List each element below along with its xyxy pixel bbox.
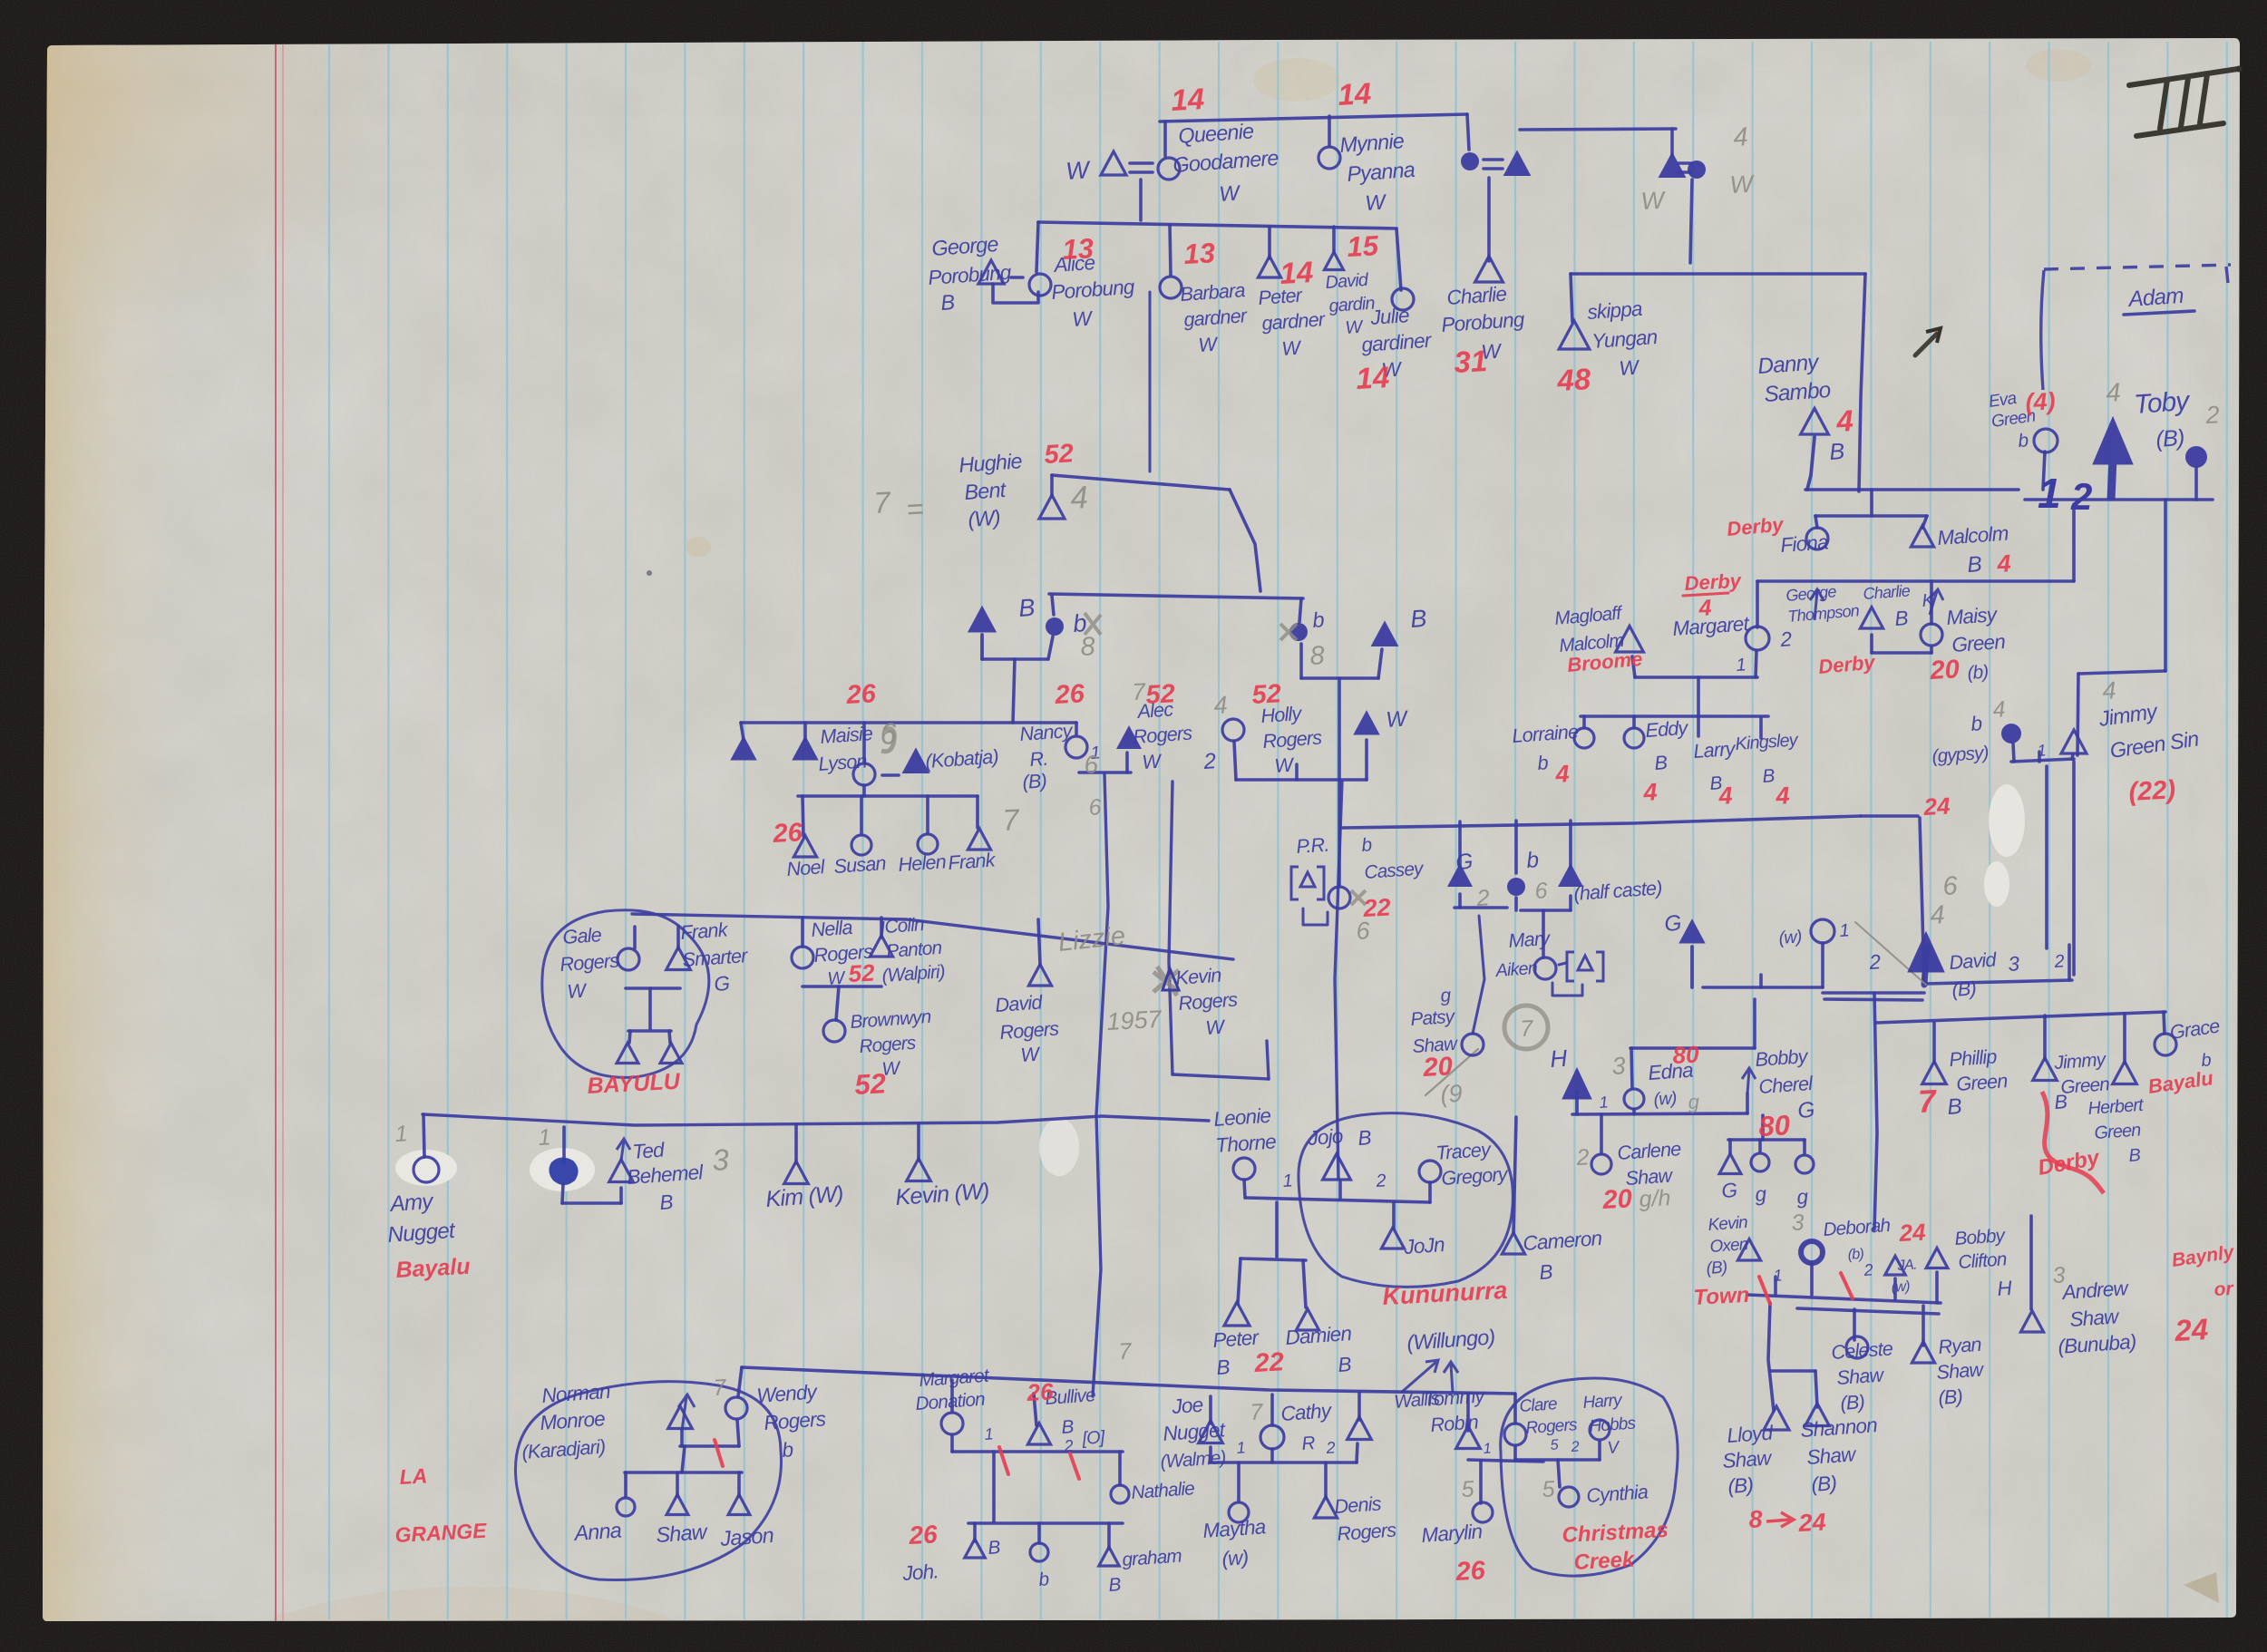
svg-text:Green: Green [1951, 630, 2006, 656]
svg-text:Ryan: Ryan [1938, 1333, 1983, 1358]
svg-text:Susan: Susan [833, 851, 888, 878]
svg-text:Green: Green [1956, 1069, 2009, 1095]
svg-text:(w): (w) [1778, 927, 1803, 948]
svg-text:4: 4 [1069, 480, 1088, 516]
svg-text:b: b [2018, 430, 2029, 452]
svg-text:Kim (W): Kim (W) [764, 1181, 843, 1212]
svg-text:6: 6 [1084, 750, 1100, 779]
svg-text:2: 2 [1575, 1144, 1590, 1171]
svg-text:20: 20 [1929, 655, 1961, 685]
svg-text:Jason: Jason [719, 1523, 774, 1550]
svg-text:6: 6 [879, 716, 898, 751]
svg-text:Mary: Mary [1508, 927, 1552, 952]
svg-text:W: W [1729, 170, 1756, 199]
svg-text:Nathalie: Nathalie [1131, 1478, 1195, 1503]
svg-text:7: 7 [872, 485, 892, 520]
svg-text:Rogers: Rogers [559, 948, 620, 976]
svg-text:Green: Green [2060, 1074, 2110, 1098]
svg-text:B: B [1539, 1260, 1554, 1284]
svg-text:B: B [1894, 607, 1910, 630]
svg-text:Patsy: Patsy [1410, 1006, 1457, 1030]
svg-text:26: 26 [908, 1520, 939, 1550]
svg-text:Colin: Colin [884, 914, 925, 938]
svg-text:22: 22 [1253, 1347, 1285, 1378]
svg-text:Yungan: Yungan [1591, 326, 1659, 353]
svg-text:Rogers: Rogers [859, 1033, 917, 1057]
svg-text:7: 7 [713, 1375, 727, 1401]
svg-text:Town: Town [1693, 1283, 1750, 1310]
svg-text:B: B [1338, 1353, 1353, 1376]
svg-text:b: b [1970, 712, 1983, 735]
svg-text:3: 3 [2052, 1262, 2066, 1288]
svg-text:Eva: Eva [1988, 389, 2018, 412]
svg-text:8: 8 [1748, 1505, 1764, 1533]
svg-text:4: 4 [1213, 691, 1229, 719]
svg-text:gardin: gardin [1328, 293, 1376, 316]
svg-text:2: 2 [2070, 475, 2092, 518]
svg-text:4: 4 [1642, 778, 1659, 806]
svg-text:6: 6 [1356, 917, 1372, 945]
svg-text:b: b [1526, 848, 1540, 873]
svg-text:8: 8 [1309, 641, 1326, 671]
svg-text:David: David [1325, 270, 1370, 293]
svg-text:Bayalu: Bayalu [395, 1254, 471, 1283]
svg-text:Creek: Creek [1573, 1547, 1637, 1575]
svg-text:(22): (22) [2128, 775, 2176, 807]
svg-text:Lyson: Lyson [818, 749, 869, 775]
svg-text:Nugget: Nugget [387, 1219, 457, 1248]
svg-text:1: 1 [538, 1124, 551, 1151]
svg-text:Panton: Panton [886, 938, 943, 962]
svg-text:31: 31 [1453, 344, 1488, 379]
svg-text:P.R.: P.R. [1296, 833, 1330, 858]
svg-text:4: 4 [1992, 696, 2006, 723]
svg-text:6: 6 [1534, 878, 1548, 904]
svg-text:Tracey: Tracey [1435, 1138, 1493, 1164]
svg-text:Celeste: Celeste [1831, 1336, 1894, 1364]
svg-text:Cathy: Cathy [1280, 1399, 1334, 1425]
svg-text:(B): (B) [1938, 1385, 1963, 1409]
svg-text:(W): (W) [968, 506, 1001, 531]
svg-text:Rogers: Rogers [1262, 725, 1323, 753]
svg-text:or: or [2213, 1278, 2235, 1300]
svg-text:2: 2 [2204, 401, 2221, 429]
svg-text:13: 13 [1183, 237, 1216, 270]
svg-text:B: B [1216, 1356, 1231, 1379]
svg-text:(B): (B) [1022, 769, 1047, 793]
svg-text:7: 7 [1001, 802, 1021, 837]
svg-text:Rogers: Rogers [1525, 1415, 1579, 1438]
svg-text:David: David [1949, 947, 1999, 974]
svg-text:Derby: Derby [1684, 569, 1743, 595]
svg-text:G: G [1455, 850, 1474, 875]
svg-text:Hobbs: Hobbs [1589, 1414, 1637, 1436]
svg-text:1: 1 [1839, 920, 1850, 941]
svg-text:Sambo: Sambo [1764, 378, 1832, 407]
svg-text:Toby: Toby [2133, 386, 2192, 420]
svg-text:Maisie: Maisie [820, 722, 874, 748]
svg-text:3: 3 [1611, 1052, 1627, 1080]
svg-text:Hughie: Hughie [958, 449, 1024, 477]
svg-text:Harry: Harry [1582, 1391, 1624, 1413]
svg-text:26: 26 [1054, 679, 1086, 710]
svg-text:Bobby: Bobby [1755, 1045, 1810, 1071]
svg-text:G: G [1721, 1179, 1738, 1202]
svg-text:=: = [905, 491, 924, 526]
svg-text:6: 6 [1088, 794, 1102, 821]
svg-text:7: 7 [1118, 1338, 1133, 1365]
svg-text:Robin: Robin [1430, 1410, 1480, 1436]
svg-text:Rogers: Rogers [1337, 1518, 1397, 1545]
svg-text:Bent: Bent [964, 478, 1008, 504]
svg-text:(4): (4) [2025, 387, 2057, 416]
svg-text:Rogers: Rogers [1133, 721, 1193, 748]
svg-text:Andrew: Andrew [2060, 1277, 2131, 1304]
svg-text:6: 6 [1942, 871, 1960, 901]
svg-text:JoJn: JoJn [1403, 1233, 1445, 1258]
svg-text:4: 4 [1834, 403, 1853, 438]
svg-text:26: 26 [1455, 1556, 1487, 1587]
svg-text:Rogers: Rogers [1178, 987, 1239, 1015]
svg-text:Rogers: Rogers [999, 1016, 1060, 1044]
svg-text:(w): (w) [1653, 1088, 1678, 1110]
svg-text:graham: graham [1122, 1545, 1182, 1570]
svg-text:2: 2 [1475, 885, 1490, 911]
svg-text:Damien: Damien [1285, 1322, 1353, 1349]
svg-text:Herbert: Herbert [2087, 1095, 2145, 1119]
svg-text:Eddy: Eddy [1645, 716, 1690, 742]
svg-text:BAYULU: BAYULU [587, 1069, 682, 1099]
svg-text:(B): (B) [1811, 1472, 1838, 1496]
svg-text:Lorraine: Lorraine [1512, 720, 1580, 747]
svg-text:4: 4 [1698, 595, 1712, 621]
svg-text:48: 48 [1555, 362, 1591, 397]
svg-text:Charlie: Charlie [1446, 282, 1508, 309]
svg-text:Kevin: Kevin [1708, 1213, 1748, 1235]
svg-text:Nancy: Nancy [1019, 719, 1075, 745]
svg-text:Fiona: Fiona [1780, 530, 1829, 557]
svg-text:JA.: JA. [1896, 1257, 1917, 1274]
svg-text:(9: (9 [1440, 1080, 1464, 1108]
svg-text:g/h: g/h [1639, 1185, 1671, 1212]
svg-text:5: 5 [1461, 1476, 1474, 1502]
svg-text:Rogers: Rogers [764, 1407, 827, 1434]
svg-text:Clifton: Clifton [1958, 1249, 2008, 1273]
svg-text:1: 1 [1282, 1171, 1293, 1191]
svg-text:26: 26 [772, 818, 804, 849]
svg-text:W: W [1640, 187, 1668, 215]
svg-text:(b): (b) [1847, 1246, 1864, 1263]
svg-text:B: B [1017, 594, 1036, 622]
svg-text:7: 7 [1917, 1084, 1938, 1120]
svg-text:5: 5 [1542, 1476, 1555, 1502]
svg-text:B: B [1357, 1126, 1373, 1150]
svg-text:Peter: Peter [1212, 1326, 1261, 1352]
svg-text:Thorne: Thorne [1215, 1130, 1277, 1157]
svg-text:skippa: skippa [1587, 297, 1643, 324]
svg-text:B: B [2054, 1090, 2068, 1113]
svg-text:7: 7 [1520, 1015, 1534, 1042]
svg-text:Monroe: Monroe [540, 1407, 606, 1434]
svg-text:B: B [1947, 1094, 1963, 1120]
svg-text:(B): (B) [1951, 977, 1977, 1001]
svg-text:52: 52 [854, 1067, 887, 1101]
svg-text:Clare: Clare [1519, 1394, 1558, 1416]
svg-text:52: 52 [1044, 439, 1075, 470]
svg-text:(B): (B) [1706, 1258, 1728, 1278]
svg-text:Amy: Amy [388, 1190, 436, 1217]
svg-text:(B): (B) [1727, 1473, 1755, 1498]
svg-text:Helen: Helen [898, 850, 948, 876]
svg-text:1957: 1957 [1106, 1006, 1163, 1035]
svg-text:4: 4 [1717, 782, 1734, 810]
svg-text:Shaw: Shaw [1836, 1363, 1886, 1389]
svg-text:Gregory: Gregory [1441, 1162, 1510, 1190]
svg-text:1: 1 [2038, 470, 2061, 517]
svg-text:Aiken: Aiken [1494, 958, 1539, 981]
svg-text:G: G [714, 972, 731, 996]
svg-text:Norman: Norman [541, 1380, 611, 1407]
svg-text:Charlie: Charlie [1863, 581, 1911, 603]
svg-text:Phillip: Phillip [1949, 1045, 1998, 1071]
svg-text:80: 80 [1672, 1040, 1700, 1069]
svg-text:Jimmy: Jimmy [2053, 1049, 2108, 1074]
svg-text:4: 4 [1930, 900, 1946, 930]
svg-text:1: 1 [2037, 741, 2047, 760]
svg-text:Green: Green [2094, 1120, 2142, 1143]
svg-text:1: 1 [984, 1424, 994, 1443]
svg-text:Bobby: Bobby [1954, 1225, 2008, 1249]
svg-text:Nugget: Nugget [1163, 1418, 1228, 1445]
svg-text:14: 14 [1170, 82, 1205, 117]
svg-text:14: 14 [1355, 360, 1390, 395]
svg-text:4: 4 [1996, 549, 2012, 578]
svg-text:Wendy: Wendy [756, 1380, 820, 1407]
svg-text:Maytha: Maytha [1202, 1515, 1267, 1542]
svg-text:Joe: Joe [1171, 1394, 1204, 1418]
svg-text:Tommy: Tommy [1424, 1384, 1487, 1411]
svg-text:Cynthia: Cynthia [1586, 1480, 1649, 1507]
svg-text:1: 1 [1236, 1438, 1246, 1457]
svg-text:52: 52 [1145, 679, 1176, 710]
svg-text:24: 24 [1898, 1218, 1927, 1247]
svg-text:(b): (b) [1967, 661, 1989, 684]
svg-text:B: B [2128, 1145, 2142, 1166]
svg-text:1: 1 [1599, 1093, 1609, 1112]
svg-text:Danny: Danny [1757, 350, 1822, 379]
svg-text:B: B [1409, 605, 1427, 633]
svg-text:Denis: Denis [1334, 1492, 1383, 1518]
svg-text:Nella: Nella [811, 916, 854, 941]
svg-text:20: 20 [1422, 1052, 1454, 1083]
svg-text:Frank: Frank [680, 918, 730, 944]
svg-text:B: B [1828, 439, 1844, 465]
svg-text:Shaw: Shaw [2069, 1305, 2121, 1331]
svg-text:7: 7 [1250, 1399, 1264, 1425]
svg-text:g: g [1688, 1090, 1700, 1113]
svg-text:52: 52 [848, 958, 876, 987]
svg-text:24: 24 [1922, 792, 1951, 821]
svg-text:(Walpiri): (Walpiri) [881, 961, 946, 986]
svg-text:G: G [1797, 1098, 1815, 1123]
svg-text:3: 3 [711, 1142, 730, 1177]
svg-text:(B): (B) [2155, 425, 2184, 452]
svg-text:R: R [1301, 1433, 1317, 1454]
svg-text:Frank: Frank [948, 848, 997, 874]
svg-text:b: b [1038, 1569, 1050, 1590]
svg-text:Adam: Adam [2126, 284, 2185, 312]
svg-text:4: 4 [1775, 782, 1791, 810]
svg-text:Lloyd: Lloyd [1727, 1421, 1776, 1447]
svg-text:Gale: Gale [562, 923, 603, 948]
svg-text:Carlene: Carlene [1617, 1137, 1682, 1164]
svg-text:Mynnie: Mynnie [1339, 129, 1406, 157]
svg-text:Cherel: Cherel [1758, 1072, 1815, 1098]
svg-text:Shaw: Shaw [1936, 1357, 1986, 1384]
svg-text:1: 1 [394, 1121, 408, 1147]
svg-text:Oxen: Oxen [1709, 1235, 1749, 1257]
svg-text:B: B [1654, 751, 1669, 774]
svg-text:Larry: Larry [1693, 737, 1737, 763]
svg-text:B: B [1967, 552, 1983, 578]
svg-text:Marylin: Marylin [1421, 1520, 1484, 1547]
svg-text:Joh.: Joh. [901, 1560, 939, 1585]
svg-text:H: H [1549, 1045, 1568, 1073]
svg-text:4: 4 [2106, 378, 2122, 408]
svg-text:Julie: Julie [1369, 304, 1410, 329]
svg-text:24: 24 [1797, 1508, 1827, 1537]
svg-text:(w): (w) [1221, 1546, 1250, 1570]
svg-text:Leonie: Leonie [1213, 1104, 1272, 1131]
svg-text:1: 1 [1736, 655, 1746, 675]
svg-text:David: David [995, 990, 1045, 1016]
svg-text:15: 15 [1347, 229, 1380, 263]
svg-text:4: 4 [2102, 676, 2117, 705]
svg-text:(w): (w) [1891, 1278, 1911, 1296]
svg-text:13: 13 [1062, 232, 1095, 266]
svg-text:14: 14 [1279, 255, 1314, 290]
svg-text:20: 20 [1601, 1184, 1633, 1215]
svg-text:Cassey: Cassey [1364, 858, 1425, 883]
svg-text:GRANGE: GRANGE [394, 1519, 488, 1547]
svg-text:4: 4 [1733, 122, 1749, 152]
svg-text:Noel: Noel [786, 855, 827, 880]
svg-text:R.: R. [1029, 747, 1049, 771]
svg-text:Shaw: Shaw [1722, 1446, 1774, 1472]
svg-text:LA: LA [399, 1463, 428, 1489]
svg-text:b: b [782, 1438, 794, 1462]
svg-text:b: b [1361, 834, 1373, 856]
svg-text:gardner: gardner [1183, 304, 1249, 331]
svg-text:Kevin: Kevin [1175, 964, 1222, 989]
svg-text:24: 24 [2173, 1312, 2209, 1347]
svg-text:Smarter: Smarter [682, 944, 749, 971]
svg-text:(B): (B) [1840, 1390, 1865, 1414]
svg-text:George: George [931, 232, 1000, 260]
svg-text:B: B [940, 290, 956, 315]
svg-text:Shaw: Shaw [1806, 1443, 1858, 1469]
svg-text:3: 3 [1791, 1210, 1805, 1236]
svg-text:B: B [659, 1190, 675, 1214]
svg-text:(gypsy): (gypsy) [1931, 743, 1990, 767]
svg-text:Anna: Anna [572, 1518, 623, 1545]
svg-text:80: 80 [1758, 1109, 1791, 1142]
svg-text:4: 4 [1554, 760, 1571, 788]
svg-text:gardner: gardner [1261, 307, 1327, 335]
svg-text:G: G [1664, 911, 1682, 937]
svg-text:Shaw: Shaw [656, 1520, 710, 1547]
svg-text:Jojo: Jojo [1307, 1124, 1344, 1150]
svg-text:Ted: Ted [632, 1138, 666, 1162]
svg-text:1: 1 [1483, 1440, 1491, 1457]
svg-text:52: 52 [1251, 679, 1282, 710]
svg-text:Maisy: Maisy [1946, 603, 1999, 629]
svg-text:26: 26 [1026, 1377, 1055, 1406]
svg-text:8: 8 [1080, 632, 1096, 662]
svg-text:26: 26 [845, 679, 878, 710]
svg-text:1: 1 [1773, 1266, 1783, 1285]
svg-text:14: 14 [1337, 76, 1372, 112]
svg-text:Pyanna: Pyanna [1347, 158, 1416, 186]
svg-text:Barbara: Barbara [1180, 278, 1247, 306]
svg-text:[O]: [O] [1081, 1427, 1106, 1449]
